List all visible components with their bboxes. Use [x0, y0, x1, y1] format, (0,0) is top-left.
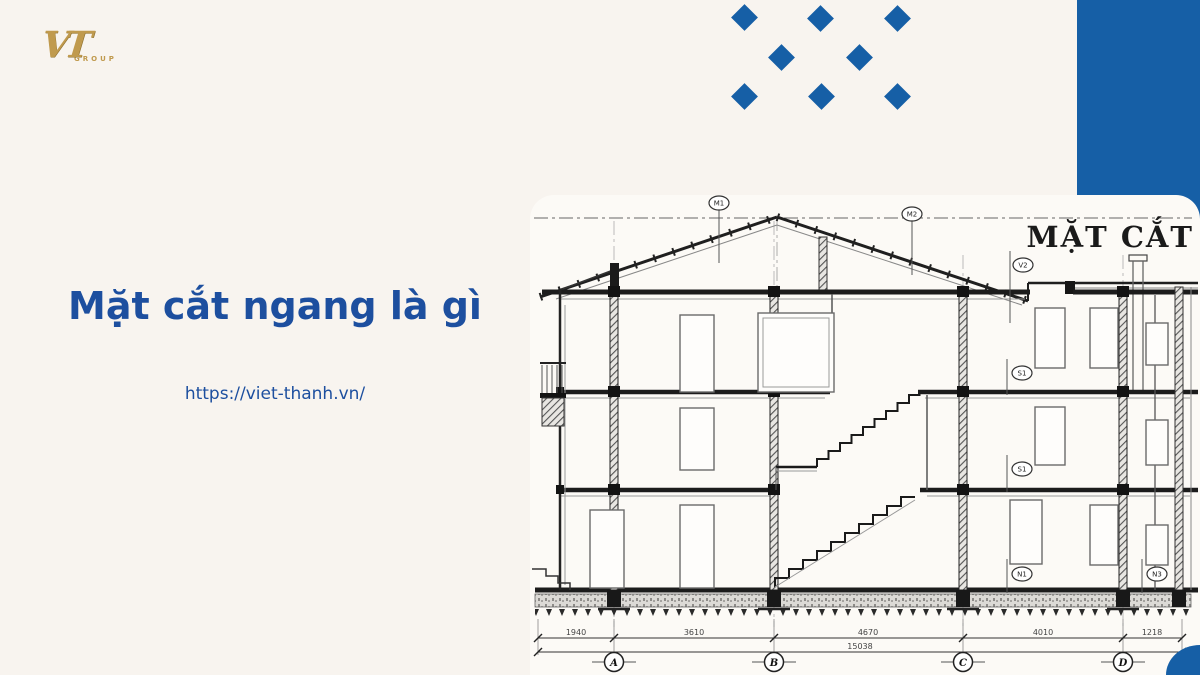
diamond-icon	[768, 44, 795, 71]
callout-label: N3	[1152, 571, 1162, 579]
dim-label: 3610	[684, 628, 704, 637]
grid-label: D	[1118, 658, 1128, 669]
hero-text: Mặt cắt ngang là gì https://viet-thanh.v…	[55, 284, 495, 404]
diamond-icon	[884, 5, 911, 32]
foundation	[535, 590, 1191, 616]
dim-label: 4670	[858, 628, 878, 637]
callout-label: V2	[1018, 262, 1027, 270]
callout-label: S1	[1018, 466, 1027, 474]
balcony	[532, 363, 570, 590]
website-url: https://viet-thanh.vn/	[55, 384, 495, 404]
diamond-icon	[846, 44, 873, 71]
diamond-icon	[807, 5, 834, 32]
callout-label: M1	[714, 200, 725, 208]
diamond-icon	[731, 83, 758, 110]
grid-label: B	[769, 658, 778, 669]
total-dim-label: 15038	[847, 642, 872, 651]
callout-label: M2	[907, 211, 918, 219]
vt-group-logo: VT GROUP	[42, 28, 117, 63]
dim-label: 4010	[1033, 628, 1053, 637]
grid-label: C	[959, 658, 967, 669]
building-cross-section-drawing: 1940 3610 4670 4010 1218 15038 A	[530, 195, 1200, 675]
diamond-icon	[731, 4, 758, 31]
drawing-title: MẶT CẮT	[1027, 215, 1194, 254]
callout-label: N1	[1017, 571, 1027, 579]
diamond-icon	[884, 83, 911, 110]
dimension-lines: 1940 3610 4670 4010 1218 15038	[534, 619, 1186, 656]
page-title: Mặt cắt ngang là gì	[55, 284, 495, 328]
diamond-icon	[808, 83, 835, 110]
grid-bubbles: A B C D	[592, 653, 1145, 672]
grid-label: A	[609, 658, 618, 669]
section-drawing-panel: 1940 3610 4670 4010 1218 15038 A	[530, 195, 1200, 675]
windows-doors	[590, 308, 1168, 588]
logo-monogram-icon: VT	[40, 28, 118, 62]
banner-page: VT GROUP Mặt cắt ngang là gì https://vie…	[0, 0, 1200, 675]
dim-label: 1940	[566, 628, 586, 637]
callout-label: S1	[1018, 370, 1027, 378]
staircases	[775, 395, 921, 587]
dim-label: 1218	[1142, 628, 1162, 637]
